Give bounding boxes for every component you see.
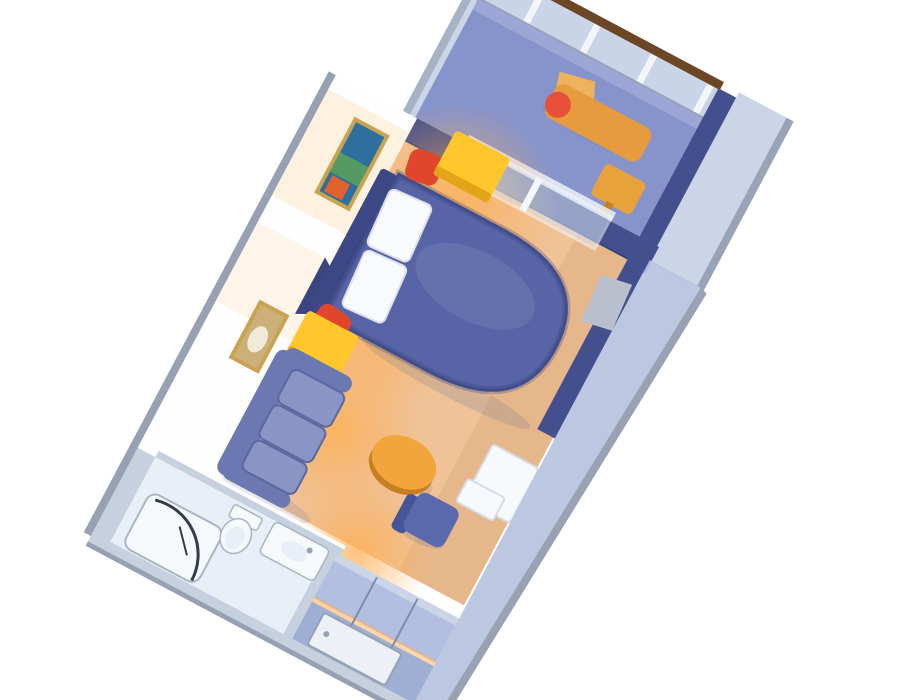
cabin-group [79, 0, 799, 700]
stateroom-3d-render [0, 0, 900, 700]
scene-svg [0, 0, 900, 700]
